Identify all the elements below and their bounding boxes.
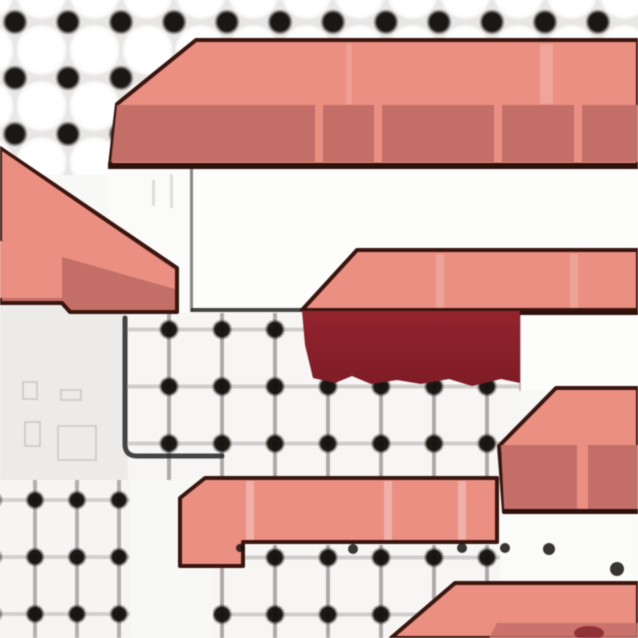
drip-dot	[457, 543, 467, 553]
building-north-wall-edge	[190, 168, 193, 312]
building-southeast-shade-band	[501, 445, 638, 509]
drip-dot	[236, 544, 244, 552]
tile-dot	[543, 543, 555, 555]
building-mid-wall-top-edge	[520, 311, 638, 315]
roof-seam-stripe	[574, 105, 582, 162]
building-mid-wall-left-edge	[519, 313, 521, 391]
awning-band	[180, 478, 497, 566]
roof-glint	[540, 44, 553, 104]
roof-glint	[458, 481, 466, 540]
building-southeast-bottom-edge	[503, 509, 638, 514]
drip-dot	[348, 544, 358, 554]
building-mid	[302, 250, 638, 391]
building-west	[0, 148, 177, 312]
roof-seam-stripe	[374, 105, 382, 162]
roof-seam-stripe	[315, 105, 323, 162]
roof-glint	[384, 481, 392, 540]
roof-seam-stripe	[577, 445, 588, 509]
roof-seam-stripe	[494, 105, 502, 162]
drip-dot	[500, 543, 510, 553]
awning-band-south	[180, 478, 497, 566]
building-bottom	[391, 583, 638, 638]
plaza-ledge-line	[125, 318, 222, 456]
roof-glint	[246, 481, 254, 540]
game-viewport[interactable]	[0, 0, 638, 638]
building-west-highlight-panel	[0, 241, 62, 298]
building-mid-roof-band	[302, 250, 638, 310]
buildings-layer	[0, 0, 638, 638]
roof-glint	[346, 44, 352, 104]
building-north-wall-base-line	[191, 308, 301, 312]
scene	[0, 0, 638, 638]
roof-glint	[436, 254, 444, 308]
building-north-roof-bottom-edge	[108, 163, 638, 169]
tile-dot	[610, 562, 624, 576]
shadow-dots	[236, 543, 624, 576]
building-bottom-shade-edge	[489, 623, 638, 638]
building-mid-maroon-awning	[302, 311, 520, 386]
building-mid-side-wall	[520, 313, 638, 391]
roof-glint	[570, 254, 578, 308]
building-southeast	[499, 388, 638, 514]
